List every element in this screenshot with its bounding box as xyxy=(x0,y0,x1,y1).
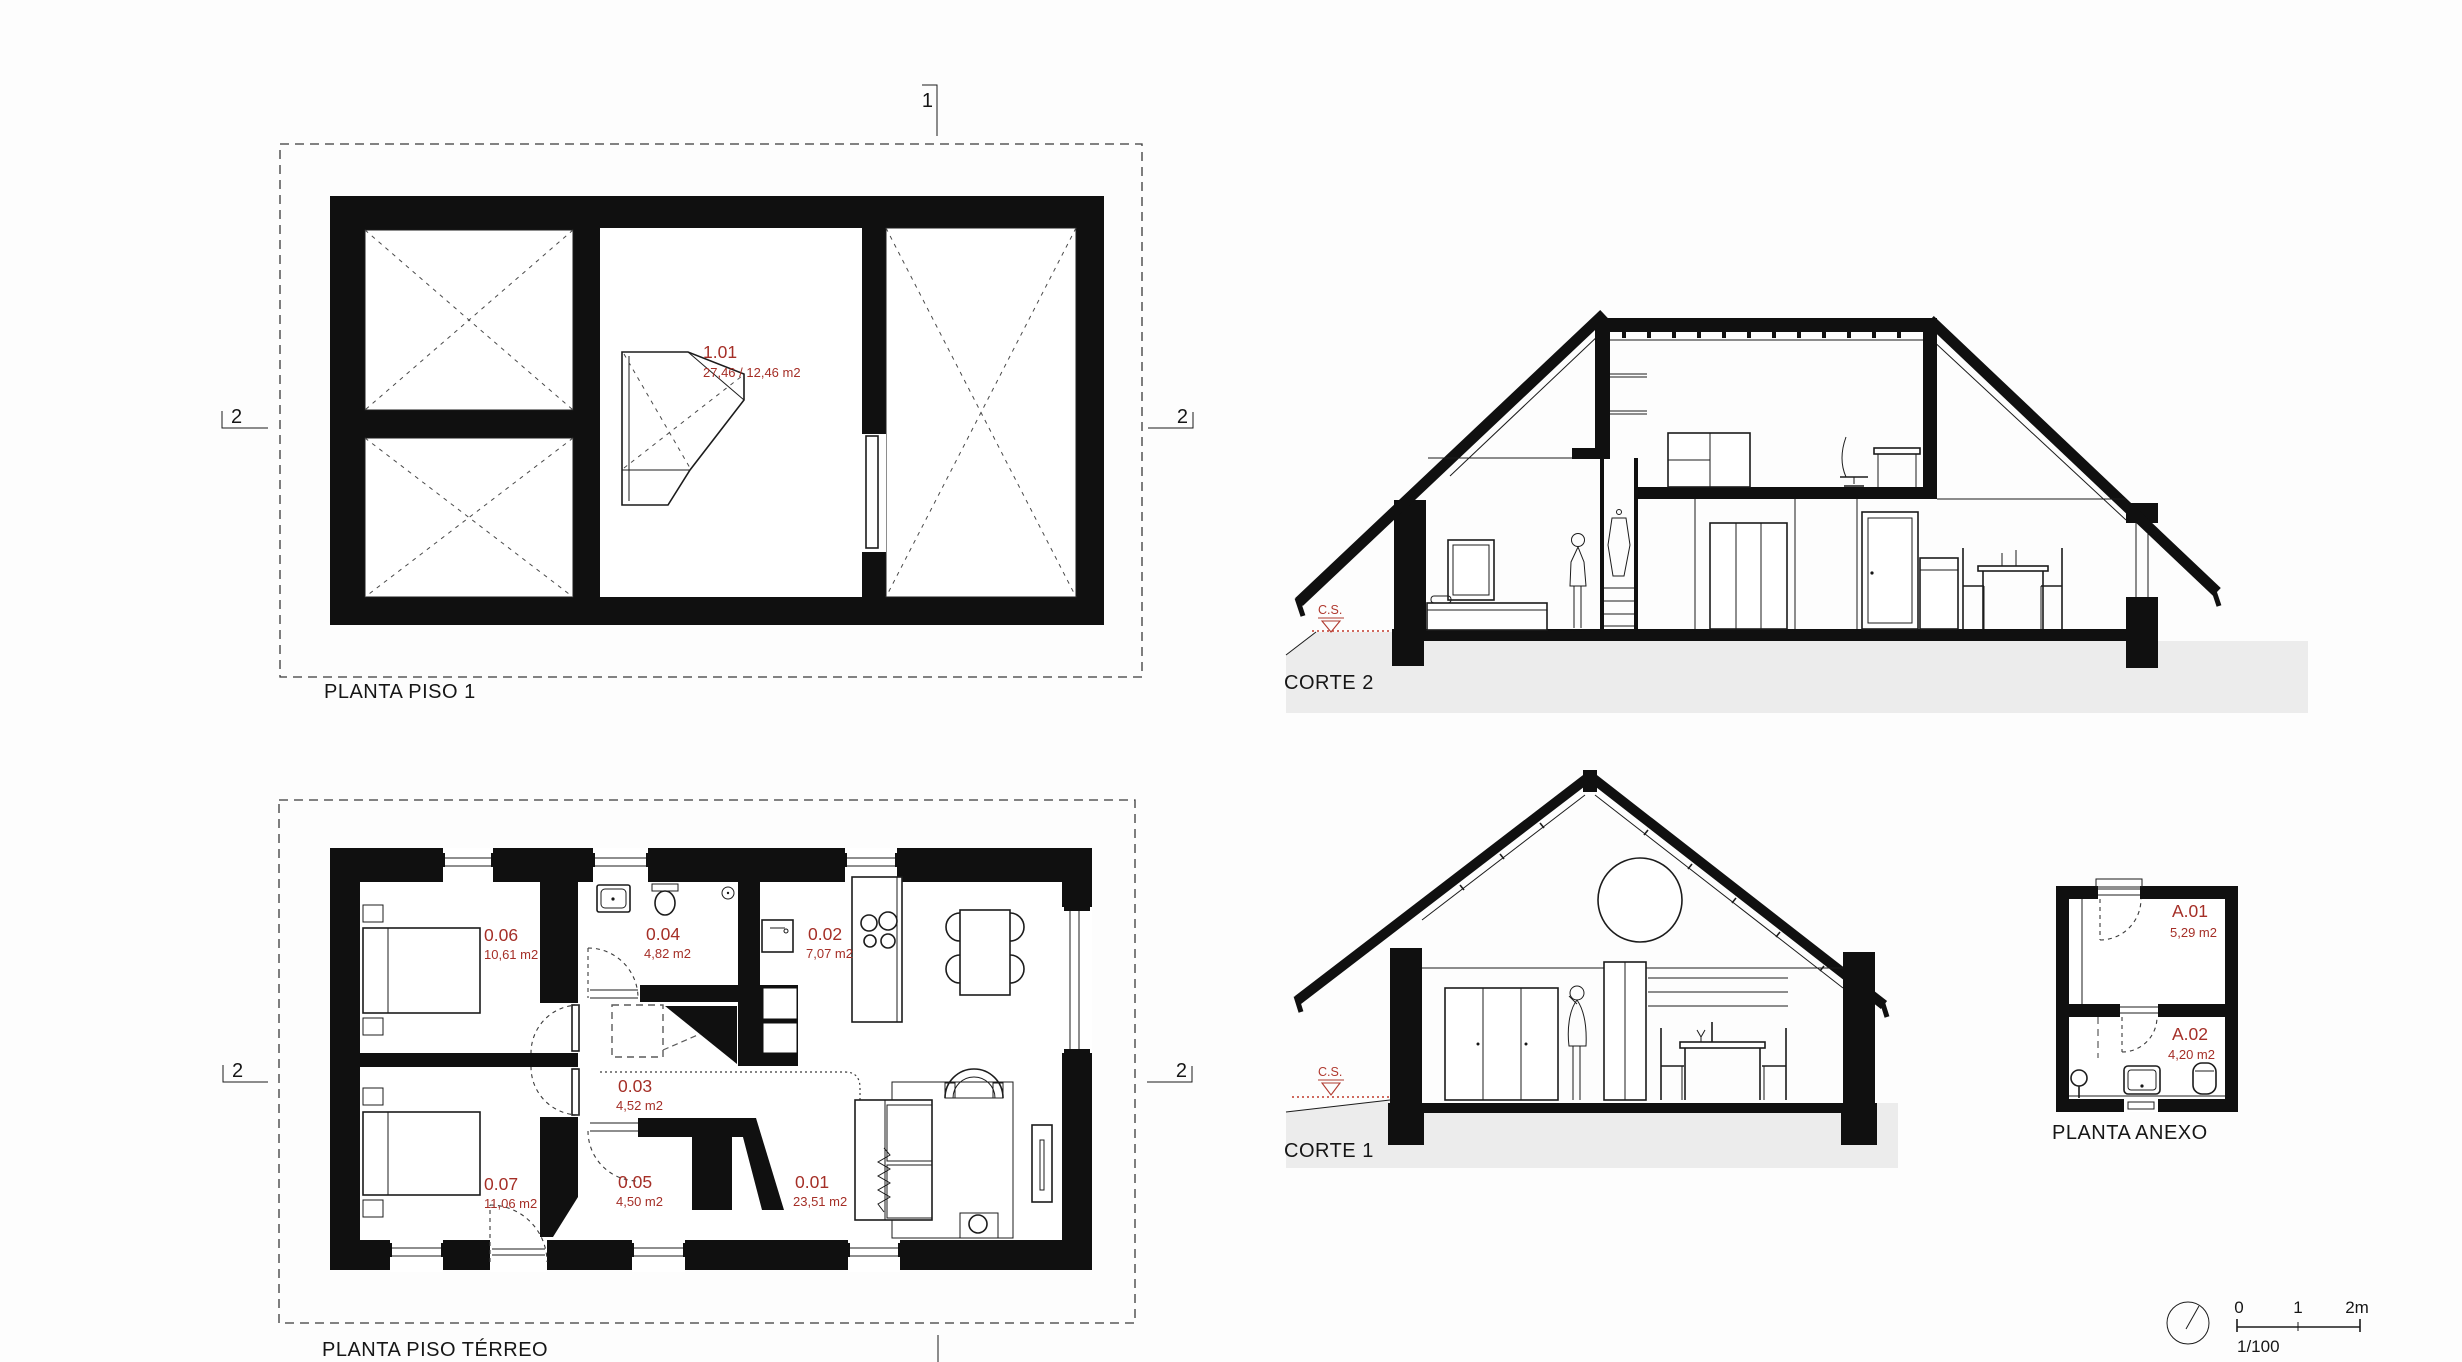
room-a-01-area: 5,29 m2 xyxy=(2170,925,2217,940)
kitchen-block xyxy=(738,985,798,1066)
wall-bath-south xyxy=(640,985,738,1002)
room-0-02-area: 7,07 m2 xyxy=(806,946,853,961)
drawing-planta-piso-1: 1 2 2 xyxy=(222,85,1193,703)
foundation-left xyxy=(1392,629,1424,666)
bedroom-window xyxy=(1448,540,1494,600)
marker-2-left-label: 2 xyxy=(231,406,242,428)
wall-room5-north xyxy=(638,1118,753,1137)
room-0-03-area: 4,52 m2 xyxy=(616,1098,663,1113)
piso1-title: PLANTA PISO 1 xyxy=(324,681,476,703)
ground-level-marker: C.S. xyxy=(1312,603,1392,632)
wall-left xyxy=(1394,500,1426,631)
scale-tick-2m: 2m xyxy=(2345,1298,2369,1317)
office-chair xyxy=(1840,437,1868,486)
ground-level-marker: C.S. xyxy=(1292,1065,1390,1097)
room-0-02-id: 0.02 xyxy=(808,924,842,944)
room-0-04-area: 4,82 m2 xyxy=(644,946,691,961)
desk xyxy=(1874,448,1920,487)
kitchen-cabinet-section xyxy=(1920,558,1958,629)
section-marker-2-left: 2 xyxy=(222,406,268,428)
mezzanine-cabinet xyxy=(1668,433,1750,487)
kitchen-tall-unit xyxy=(1604,962,1646,1100)
drawing-planta-piso-terreo: 2 2 xyxy=(223,800,1192,1362)
wall-left xyxy=(1390,948,1422,1103)
foundation-right xyxy=(1841,1103,1877,1145)
section-marker-1-top: 1 xyxy=(922,85,937,136)
glazed-door xyxy=(1862,512,1918,629)
kitchen-sink-unit xyxy=(762,920,793,952)
floor-slab xyxy=(1422,1103,1843,1113)
anexo-title: PLANTA ANEXO xyxy=(2052,1122,2208,1144)
marker-2-left-label: 2 xyxy=(232,1060,243,1082)
room-a-01-id: A.01 xyxy=(2172,901,2208,921)
double-door xyxy=(1710,523,1787,629)
room-1-01-area: 27,46 / 12,46 m2 xyxy=(703,365,801,380)
marker-2-right-label: 2 xyxy=(1177,406,1188,428)
interior-door xyxy=(862,434,886,552)
north-compass-icon xyxy=(2167,1302,2209,1344)
room-0-04-id: 0.04 xyxy=(646,924,680,944)
roof-rafter-ticks xyxy=(1622,332,1901,338)
annex-sink xyxy=(2124,1066,2160,1094)
closet-ladder xyxy=(1602,458,1636,629)
wall-room5-east xyxy=(692,1137,732,1210)
section-marker-2-left: 2 xyxy=(223,1060,268,1082)
scale-tick-1: 1 xyxy=(2293,1298,2302,1317)
wall-shelves xyxy=(1648,978,1788,1006)
terreo-title: PLANTA PISO TÉRREO xyxy=(322,1338,548,1361)
vent-opening xyxy=(2124,1099,2158,1112)
room-1-01-id: 1.01 xyxy=(703,342,737,362)
room-label-a-02: A.02 4,20 m2 xyxy=(2168,1024,2215,1062)
bathroom-sink xyxy=(597,885,630,912)
corte1-title: CORTE 1 xyxy=(1284,1140,1374,1162)
dining-set-section xyxy=(1661,1022,1786,1100)
scale-ratio: 1/100 xyxy=(2237,1337,2280,1356)
person-figure xyxy=(1568,986,1586,1100)
wall-bedroom1-hall xyxy=(540,882,578,1003)
bed-section xyxy=(1427,596,1547,630)
kitchen-counter xyxy=(852,877,902,1022)
wall-bath-kitchen xyxy=(738,882,760,985)
foundation-right xyxy=(2126,629,2158,668)
room-0-05-id: 0.05 xyxy=(618,1172,652,1192)
window-right xyxy=(1062,903,1092,1057)
window-bottom-1 xyxy=(388,1238,445,1272)
corte2-title: CORTE 2 xyxy=(1284,672,1374,694)
window-bottom-3 xyxy=(846,1238,902,1272)
room-a-02-area: 4,20 m2 xyxy=(2168,1047,2215,1062)
cs-label: C.S. xyxy=(1318,1065,1342,1079)
room-0-06-id: 0.06 xyxy=(484,925,518,945)
drawing-planta-anexo: A.01 5,29 m2 A.02 4,20 m2 PLANTA ANEXO xyxy=(2052,879,2238,1144)
mezzanine xyxy=(1572,318,1937,499)
person-figure xyxy=(1570,534,1586,629)
tv-sideboard xyxy=(1032,1125,1052,1202)
sofa xyxy=(855,1100,932,1220)
room-0-03-id: 0.03 xyxy=(618,1076,652,1096)
room-0-01-id: 0.01 xyxy=(795,1172,829,1192)
section-marker-2-right: 2 xyxy=(1147,1060,1192,1082)
scale-bar: 0 1 2m 1/100 xyxy=(2167,1298,2369,1356)
cs-label: C.S. xyxy=(1318,603,1342,617)
window-top-1 xyxy=(441,848,495,882)
architectural-sheet: 1 2 2 xyxy=(0,0,2462,1362)
marker-2-right-label: 2 xyxy=(1176,1060,1187,1082)
section-marker-2-right: 2 xyxy=(1148,406,1193,428)
wardrobe xyxy=(1445,988,1558,1100)
room-0-07-id: 0.07 xyxy=(484,1174,518,1194)
foundation-left xyxy=(1388,1103,1424,1145)
wall-right xyxy=(1843,952,1875,1103)
room-0-06-area: 10,61 m2 xyxy=(484,947,538,962)
drawing-corte-2: C.S. xyxy=(1284,314,2308,713)
marker-1-label: 1 xyxy=(922,90,933,112)
dining-set-section xyxy=(1963,548,2062,629)
window-bottom-2 xyxy=(630,1238,687,1272)
round-gable-window xyxy=(1598,858,1682,942)
room-0-07-area: 11,06 m2 xyxy=(484,1196,537,1211)
window-top-2 xyxy=(591,848,650,882)
room-0-01-area: 23,51 m2 xyxy=(793,1194,847,1209)
scale-tick-0: 0 xyxy=(2234,1298,2243,1317)
wall-between-bedrooms xyxy=(360,1053,578,1067)
room-0-05-area: 4,50 m2 xyxy=(616,1194,663,1209)
annex-toilet xyxy=(2193,1063,2216,1094)
room-a-02-id: A.02 xyxy=(2172,1024,2208,1044)
